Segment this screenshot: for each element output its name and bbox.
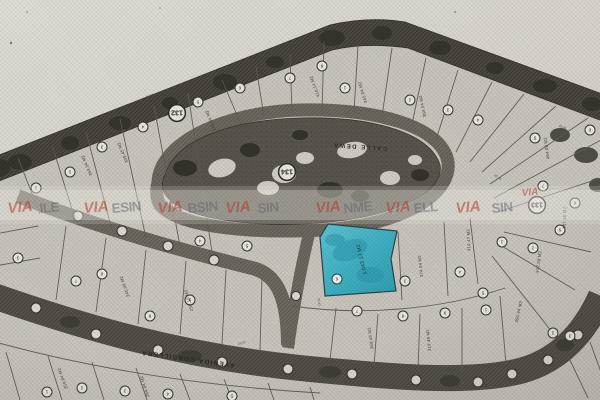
lot-marker-number: 5 bbox=[533, 135, 536, 140]
lot-marker-number: 8 bbox=[148, 313, 151, 318]
lot-number-marker: 4 bbox=[163, 389, 173, 399]
lot-marker-number: 5 bbox=[481, 290, 484, 295]
lot-marker-number: 3 bbox=[123, 388, 126, 393]
lot-marker-number: 9 bbox=[443, 310, 446, 315]
lot-number-marker: 9 bbox=[440, 308, 450, 318]
lot-marker-number: 1 bbox=[484, 307, 487, 312]
lot-number-marker: 4 bbox=[455, 267, 465, 277]
lot-number-marker: 2 bbox=[65, 167, 75, 177]
highlighted-lot: 1,043.17 M2 6 bbox=[320, 224, 397, 296]
watermark-text-gray: SIN bbox=[491, 199, 513, 216]
lot-marker-number: 7 bbox=[288, 75, 291, 80]
lot-marker-number: 2 bbox=[551, 330, 554, 335]
lot-marker-number: 7 bbox=[355, 308, 358, 313]
lot-number-marker: 8 bbox=[145, 311, 155, 321]
lot-marker-number: 3 bbox=[568, 333, 571, 338]
lot-number-marker: 8 bbox=[398, 311, 408, 321]
watermark-text-gray: ELL bbox=[413, 199, 438, 216]
watermark-logo-red: VIA bbox=[157, 198, 183, 217]
watermark-text-gray: SIN bbox=[257, 199, 279, 216]
lot-number-marker: 4 bbox=[138, 122, 148, 132]
lot-number-marker: 7 bbox=[71, 276, 81, 286]
lot-number-marker: 2 bbox=[548, 328, 558, 338]
block-label-number: 134 bbox=[281, 168, 293, 177]
lot-marker-number: 1 bbox=[500, 239, 503, 244]
lot-number-marker: 8 bbox=[317, 61, 327, 71]
lot-marker-number: 2 bbox=[80, 385, 83, 390]
lot-marker-number: 1 bbox=[343, 85, 346, 90]
lot-marker-number: 2 bbox=[68, 169, 71, 174]
lot-number-marker: 5 bbox=[242, 241, 252, 251]
lot-number-marker: 3 bbox=[565, 331, 575, 341]
lot-number-marker: 3 bbox=[97, 142, 107, 152]
watermark-band: VIAILEVIAESINVIABSINVIASINVIANMEVIAELLVI… bbox=[0, 186, 600, 224]
lot-marker-number: 6 bbox=[100, 271, 103, 276]
lot-marker-number: 5 bbox=[196, 99, 199, 104]
block-number-label: 134 bbox=[279, 164, 296, 181]
lot-marker-number: 8 bbox=[401, 313, 404, 318]
lot-marker-number: 5 bbox=[230, 393, 233, 398]
subdivision-plat-svg: 1,043.17 M2 6 12345678123456789123457891… bbox=[0, 0, 600, 400]
lot-number-marker: 3 bbox=[13, 253, 23, 263]
lot-number-marker: 5 bbox=[530, 133, 540, 143]
lot-marker-number: 6 bbox=[238, 85, 241, 90]
lot-number-marker: 4 bbox=[195, 236, 205, 246]
lot-marker-number: 3 bbox=[16, 255, 19, 260]
lot-number-marker: 3 bbox=[120, 386, 130, 396]
lot-number-marker: 4 bbox=[473, 115, 483, 125]
lot-number-marker: 7 bbox=[352, 306, 362, 316]
lot-marker-number: 4 bbox=[476, 117, 479, 122]
watermark-logo-red: VIA bbox=[225, 198, 251, 217]
watermark-text-gray: BSIN bbox=[187, 198, 218, 216]
lot-marker-number: 4 bbox=[458, 269, 461, 274]
watermark-logo-red: VIA bbox=[385, 198, 411, 217]
block-label-number: 132 bbox=[171, 109, 183, 118]
watermark-logo-red: VIA bbox=[7, 198, 33, 217]
lot-number-marker: 2 bbox=[405, 95, 415, 105]
watermark-text-gray: ILE bbox=[39, 199, 60, 216]
lot-marker-number: 1 bbox=[45, 389, 48, 394]
lot-marker-number: 7 bbox=[74, 278, 77, 283]
lot-marker-number: 6 bbox=[588, 127, 591, 132]
watermark-text-gray: ESIN bbox=[111, 198, 142, 216]
lot-number-marker: 6 bbox=[235, 83, 245, 93]
lot-number-marker: 5 bbox=[193, 97, 203, 107]
lot-marker-number: 5 bbox=[245, 243, 248, 248]
lot-number-marker: 6 bbox=[97, 269, 107, 279]
lot-number-marker: 3 bbox=[443, 105, 453, 115]
lot-number-marker: 1 bbox=[497, 237, 507, 247]
lot-number-marker: 7 bbox=[285, 73, 295, 83]
lot-marker-number: 3 bbox=[100, 144, 103, 149]
lot-marker-number: 2 bbox=[531, 245, 534, 250]
lot-marker-number: 3 bbox=[446, 107, 449, 112]
watermark-logo-red: VIA bbox=[455, 198, 481, 217]
watermark-text-gray: NME bbox=[343, 199, 373, 216]
lot-number-marker: 5 bbox=[478, 288, 488, 298]
lot-marker-number: 8 bbox=[320, 63, 323, 68]
lot-number-marker: 1 bbox=[340, 83, 350, 93]
watermark-logo-red: VIA bbox=[83, 198, 109, 217]
lot-area-label: 410.47 M2 bbox=[466, 229, 472, 252]
dimension-label: 14.22 bbox=[298, 124, 307, 129]
block-number-label: 132 bbox=[169, 105, 186, 122]
lot-number-marker: 5 bbox=[227, 391, 237, 400]
lot-marker-number: 4 bbox=[198, 238, 201, 243]
highlighted-lot-number: 6 bbox=[335, 276, 338, 281]
lot-number-marker: 1 bbox=[481, 305, 491, 315]
lot-marker-number: 3 bbox=[403, 278, 406, 283]
dimension-label: 35.43 bbox=[317, 298, 322, 307]
lot-marker-number: 4 bbox=[141, 124, 144, 129]
lot-marker-number: 4 bbox=[166, 391, 169, 396]
lot-number-marker: 2 bbox=[77, 383, 87, 393]
watermark-logo-red: VIA bbox=[521, 187, 539, 199]
lot-marker-number: 2 bbox=[408, 97, 411, 102]
plat-map-photo: 1,043.17 M2 6 12345678123456789123457891… bbox=[0, 0, 600, 400]
lot-number-marker: 1 bbox=[42, 387, 52, 397]
lot-number-marker: 6 bbox=[585, 125, 595, 135]
lot-number-marker: 3 bbox=[400, 276, 410, 286]
watermark-logo-red: VIA bbox=[315, 198, 341, 217]
